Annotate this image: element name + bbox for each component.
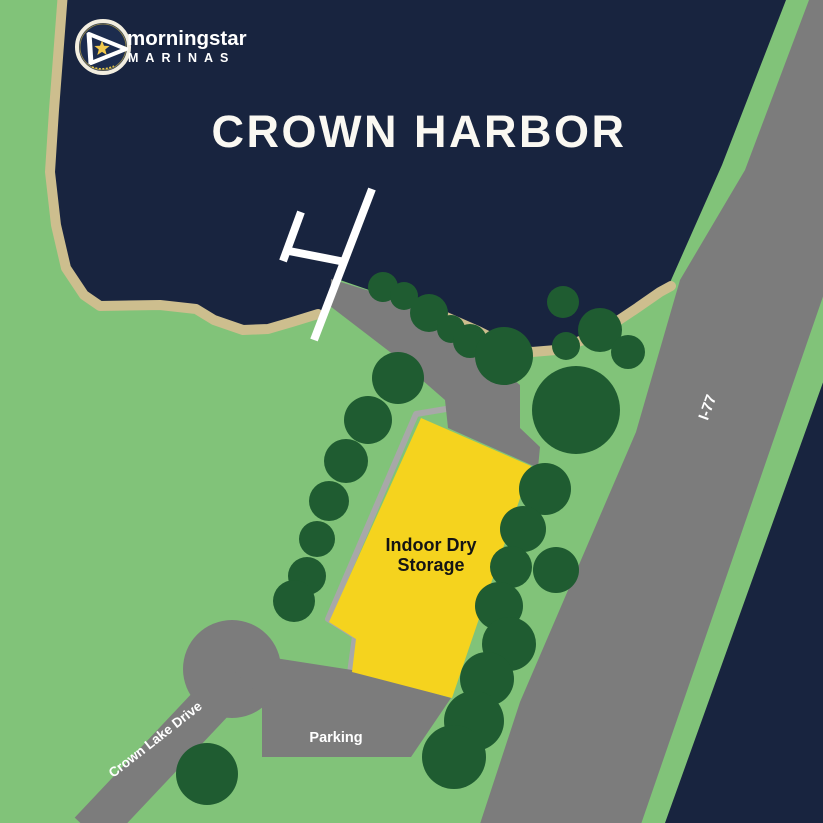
tree (490, 546, 532, 588)
tree (611, 335, 645, 369)
tree (532, 366, 620, 454)
tree (475, 327, 533, 385)
building-label-line2: Storage (397, 555, 464, 575)
pennant-pole (89, 33, 91, 64)
tree (372, 352, 424, 404)
morningstar-logo (77, 21, 129, 73)
tree (500, 506, 546, 552)
parking-label: Parking (309, 730, 362, 746)
tree (422, 725, 486, 789)
map-canvas: morningstar MARINAS CROWN HARBOR I-77 In… (0, 0, 823, 823)
tree (309, 481, 349, 521)
tree (344, 396, 392, 444)
tree (176, 743, 238, 805)
page-title: CROWN HARBOR (212, 106, 627, 157)
tree (273, 580, 315, 622)
brand-name-bottom: MARINAS (128, 51, 235, 65)
tree (552, 332, 580, 360)
brand-name-top: morningstar (127, 27, 247, 50)
tree (324, 439, 368, 483)
tree (547, 286, 579, 318)
crown-harbor-map: morningstar MARINAS CROWN HARBOR I-77 In… (0, 0, 823, 823)
tree (299, 521, 335, 557)
tree (533, 547, 579, 593)
building-label-line1: Indoor Dry (385, 535, 476, 555)
